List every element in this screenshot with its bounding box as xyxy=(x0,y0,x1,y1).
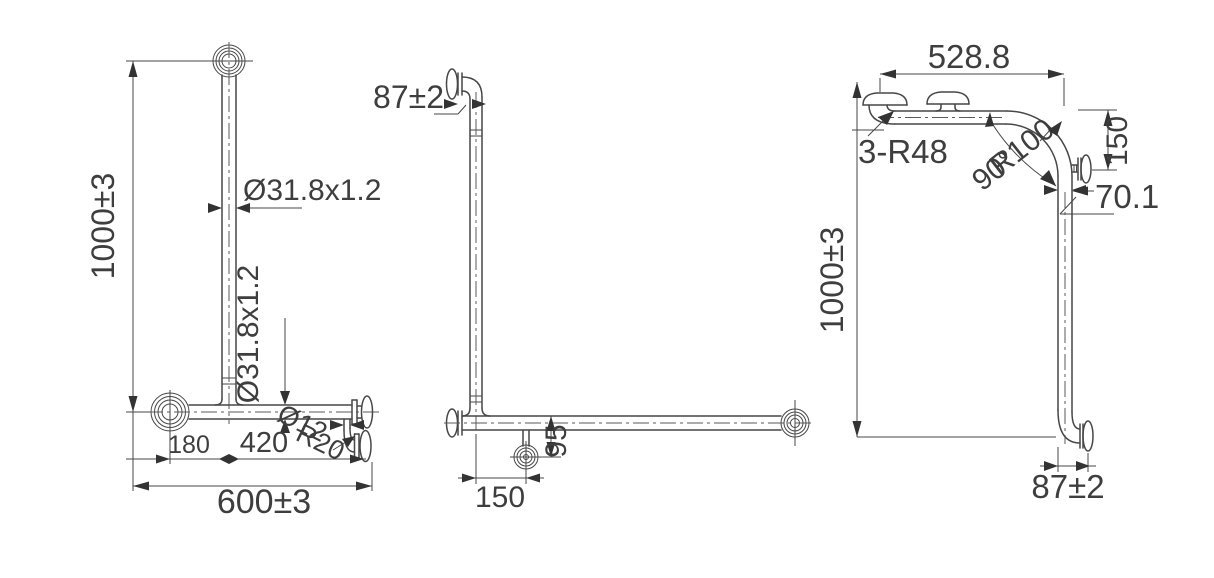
dim-rear-150: 150 xyxy=(1078,110,1134,170)
dim-rear-height-label: 1000±3 xyxy=(814,227,850,334)
callout-mount-radius: 3-R48 xyxy=(858,111,948,170)
dim-rear-wall-offset: 87±2 xyxy=(1031,447,1104,505)
view-rear: 528.8 3-R48 R100 90° 150 xyxy=(814,38,1159,505)
side-vertical-tube xyxy=(462,77,490,430)
dim-420-label: 420 xyxy=(240,427,288,459)
drawing-svg: 1000±3 Ø31.8x1.2 Ø31.8x1.2 Ø12 R20 xyxy=(0,0,1214,578)
side-support-flange-icon xyxy=(510,430,542,473)
horizontal-tube-dia-label: Ø31.8x1.2 xyxy=(232,265,265,403)
callout-vertical-tube-dia: Ø31.8x1.2 xyxy=(208,174,381,213)
view-front: 1000±3 Ø31.8x1.2 Ø31.8x1.2 Ø12 R20 xyxy=(85,42,381,521)
dim-side-95: 95 xyxy=(540,416,573,458)
wall-flange-bottom-icon xyxy=(151,390,189,436)
mount-radius-label: 3-R48 xyxy=(858,133,948,170)
dim-70-label: 70.1 xyxy=(1095,178,1159,215)
vertical-tube-dia-label: Ø31.8x1.2 xyxy=(243,174,381,207)
side-horizontal-tube xyxy=(444,409,814,437)
dim-front-height-label: 1000±3 xyxy=(85,173,121,280)
dim-87-rear-label: 87±2 xyxy=(1031,468,1104,505)
dim-180-label: 180 xyxy=(168,431,210,459)
side-wall-flange-top-icon xyxy=(447,69,463,99)
dim-150-rear-label: 150 xyxy=(1101,116,1134,166)
dim-600-label: 600±3 xyxy=(217,483,311,521)
side-wall-offset-label: 87±2 xyxy=(373,79,444,115)
technical-drawing-canvas: 1000±3 Ø31.8x1.2 Ø31.8x1.2 Ø12 R20 xyxy=(0,0,1214,578)
dim-rear-top-width: 528.8 xyxy=(880,38,1064,106)
view-side: 87±2 xyxy=(373,69,814,514)
dim-front-height: 1000±3 xyxy=(85,61,213,412)
dim-150-side-label: 150 xyxy=(475,481,525,514)
callout-center-span: 70.1 xyxy=(1044,178,1159,215)
rear-middle-mount-icon xyxy=(927,92,969,111)
dim-95-label: 95 xyxy=(540,424,573,457)
dim-528-label: 528.8 xyxy=(928,38,1011,75)
rear-support-flange-icon xyxy=(1072,155,1091,183)
callout-side-wall-offset: 87±2 xyxy=(373,79,486,115)
